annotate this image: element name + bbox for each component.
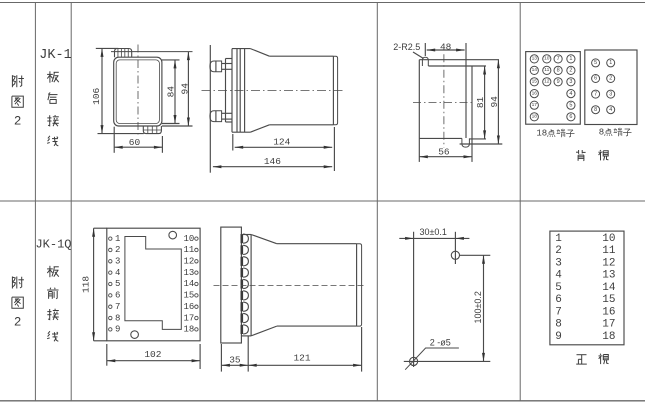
svg-text:17: 17 [532,102,538,108]
svg-text:121: 121 [293,353,310,364]
svg-text:2: 2 [569,68,572,74]
svg-text:15: 15 [602,294,615,306]
svg-text:94: 94 [489,96,500,108]
svg-text:11: 11 [544,67,549,73]
svg-text:11: 11 [602,245,616,257]
svg-text:84: 84 [166,86,177,98]
svg-text:1: 1 [115,234,120,244]
svg-text:30±0.1: 30±0.1 [419,227,446,237]
svg-text:11: 11 [183,245,194,255]
svg-text:9: 9 [555,331,562,343]
svg-text:102: 102 [144,349,161,360]
svg-text:81: 81 [475,96,486,108]
svg-text:18: 18 [532,114,538,120]
svg-text:4: 4 [555,270,562,282]
svg-text:118: 118 [81,276,92,293]
svg-text:8: 8 [557,68,560,74]
svg-text:5: 5 [569,102,572,108]
svg-text:18: 18 [536,129,547,139]
svg-text:15: 15 [532,79,538,85]
svg-text:7: 7 [115,302,120,312]
svg-text:JK-1: JK-1 [39,48,71,63]
svg-text:12: 12 [183,257,194,267]
svg-text:94: 94 [179,83,190,95]
svg-text:13: 13 [183,268,194,278]
svg-text:56: 56 [438,146,450,157]
svg-text:16: 16 [532,90,538,96]
svg-text:18: 18 [183,325,194,335]
svg-text:8: 8 [599,128,604,138]
svg-text:8: 8 [594,107,597,113]
svg-text:10: 10 [544,56,550,62]
svg-text:8: 8 [555,319,562,331]
svg-text:1: 1 [609,60,612,66]
svg-text:7: 7 [555,306,562,318]
svg-text:10: 10 [183,234,194,244]
svg-text:7: 7 [557,56,560,62]
svg-text:16: 16 [602,306,615,318]
svg-text:18: 18 [602,331,615,343]
svg-text:1: 1 [569,56,572,62]
svg-text:60: 60 [129,137,141,148]
svg-text:13: 13 [532,56,538,62]
svg-text:1: 1 [555,233,562,245]
svg-text:7: 7 [594,91,597,97]
svg-text:14: 14 [602,282,616,294]
svg-text:35: 35 [229,355,241,366]
svg-text:10: 10 [602,233,615,245]
svg-text:9: 9 [115,325,120,335]
svg-text:2: 2 [555,245,562,257]
svg-text:4: 4 [569,91,572,97]
svg-text:14: 14 [532,67,538,73]
svg-text:4: 4 [609,107,612,113]
svg-text:124: 124 [273,136,290,147]
svg-text:9: 9 [557,79,560,85]
svg-text:2 -ø5: 2 -ø5 [430,338,451,348]
svg-text:3: 3 [555,257,562,269]
svg-text:5: 5 [115,279,120,289]
svg-text:6: 6 [555,294,562,306]
svg-text:16: 16 [183,302,194,312]
svg-text:14: 14 [183,279,194,289]
svg-text:2: 2 [609,76,612,82]
svg-text:6: 6 [594,76,597,82]
svg-text:17: 17 [183,313,194,323]
svg-text:5: 5 [594,60,597,66]
svg-text:3: 3 [569,79,572,85]
svg-text:4: 4 [115,268,120,278]
svg-text:146: 146 [264,156,281,167]
svg-text:6: 6 [115,291,120,301]
svg-text:100±0.2: 100±0.2 [473,291,483,323]
svg-text:8: 8 [115,313,120,323]
svg-text:48: 48 [440,41,452,52]
svg-text:2: 2 [115,245,120,255]
svg-text:17: 17 [602,319,615,331]
svg-text:2: 2 [14,114,22,128]
svg-text:3: 3 [115,257,120,267]
svg-text:6: 6 [569,114,572,120]
svg-text:JK-1Q: JK-1Q [35,238,71,252]
svg-text:2: 2 [14,316,22,330]
svg-text:12: 12 [544,79,550,85]
svg-text:2-R2.5: 2-R2.5 [393,42,420,52]
svg-text:3: 3 [609,91,612,97]
svg-text:106: 106 [91,87,102,104]
svg-text:13: 13 [602,270,615,282]
svg-text:12: 12 [602,257,615,269]
svg-text:15: 15 [183,291,194,301]
svg-text:5: 5 [555,282,562,294]
